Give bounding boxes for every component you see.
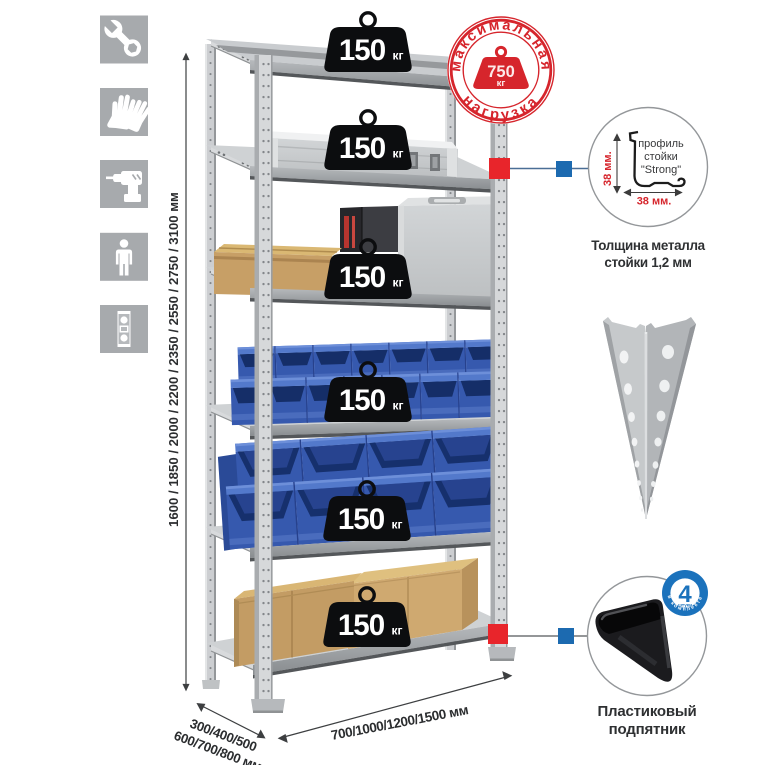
svg-text:"Strong": "Strong"	[641, 164, 681, 176]
svg-text:38 мм.: 38 мм.	[637, 196, 672, 208]
svg-text:1600 / 1850 / 2000 / 2200 / 23: 1600 / 1850 / 2000 / 2200 / 2350 / 2550 …	[166, 192, 181, 527]
svg-text:Толщина металла: Толщина металла	[591, 238, 705, 253]
svg-text:Пластиковый: Пластиковый	[597, 703, 696, 720]
svg-text:подпятник: подпятник	[609, 721, 686, 738]
svg-text:стойки: стойки	[644, 151, 678, 163]
svg-text:кг: кг	[497, 78, 506, 89]
svg-text:38 мм.: 38 мм.	[602, 151, 614, 186]
svg-text:700/1000/1200/1500 мм: 700/1000/1200/1500 мм	[330, 702, 470, 743]
svg-text:стойки 1,2 мм: стойки 1,2 мм	[604, 255, 691, 270]
svg-text:профиль: профиль	[638, 138, 684, 150]
